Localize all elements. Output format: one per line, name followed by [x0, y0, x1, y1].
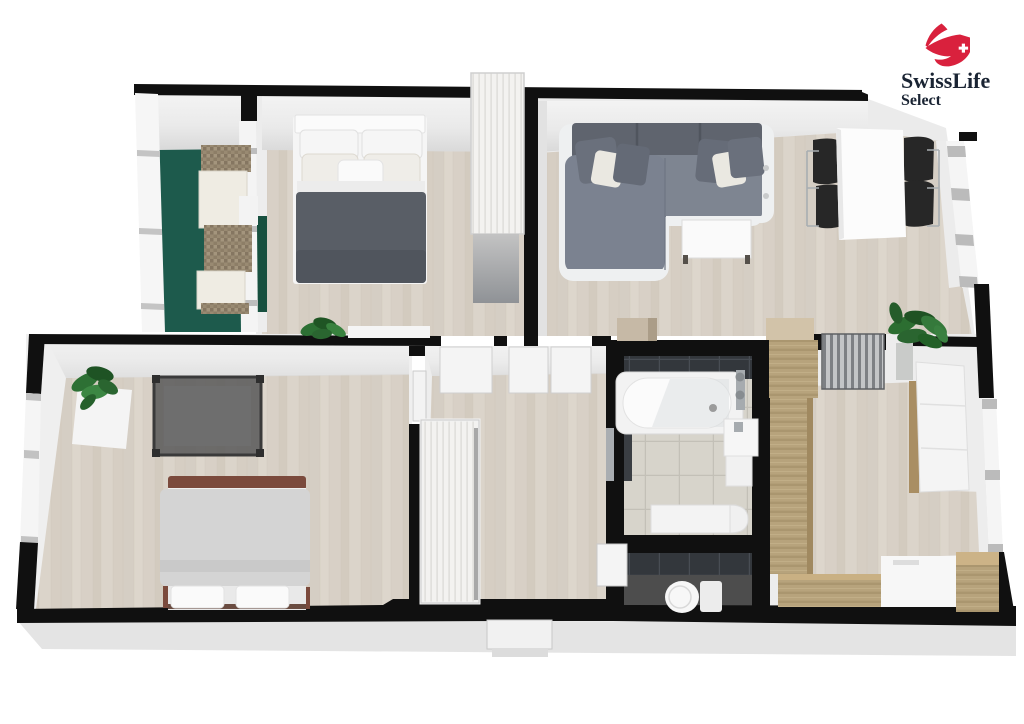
svg-text:SwissLife: SwissLife: [901, 68, 990, 93]
svg-text:Select: Select: [901, 92, 942, 109]
